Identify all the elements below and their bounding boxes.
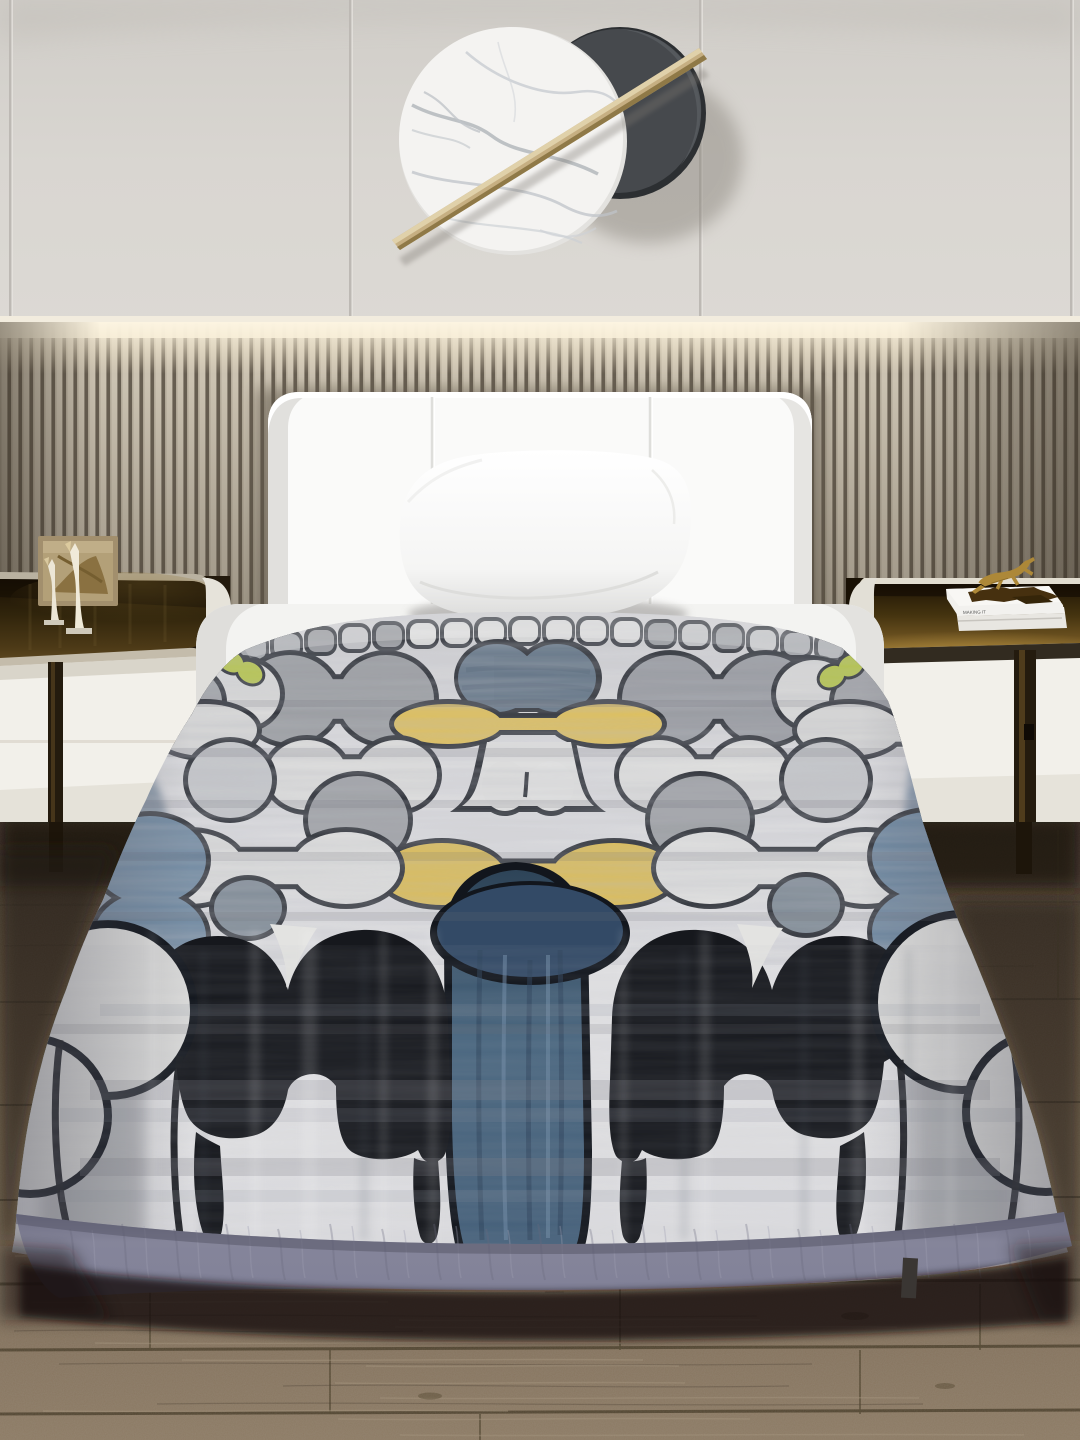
svg-text:MAKING IT: MAKING IT <box>963 609 986 615</box>
